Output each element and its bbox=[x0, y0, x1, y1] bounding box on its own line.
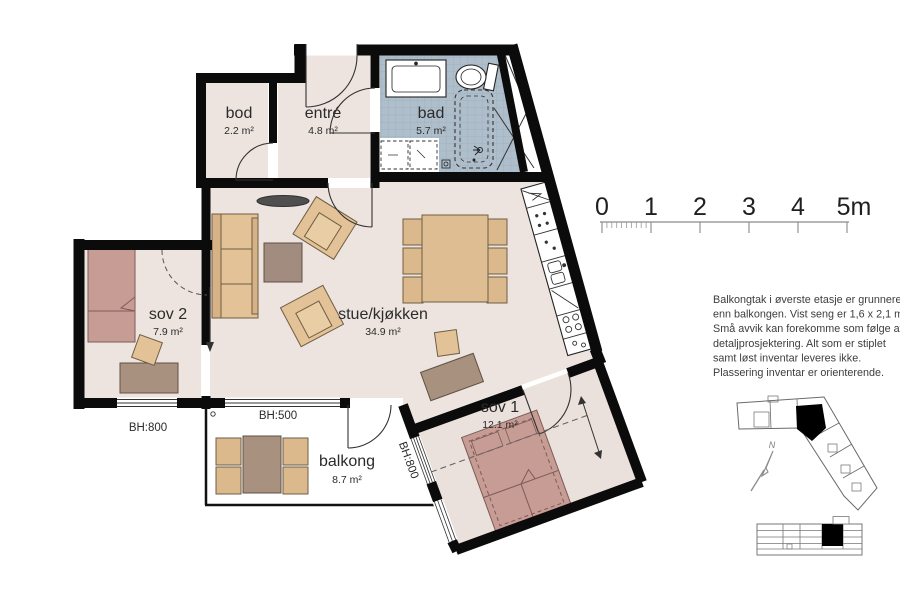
desk-chair-stue bbox=[434, 330, 459, 357]
balcony-table bbox=[243, 436, 281, 493]
balcony-chair bbox=[283, 467, 308, 494]
window-balkong-bh500 bbox=[225, 398, 340, 409]
room-label-sov1: sov 1 bbox=[481, 399, 519, 416]
scale-tick-0: 0 bbox=[595, 193, 609, 221]
scale-tick-5m: 5m bbox=[837, 193, 872, 221]
room-label-bod: bod bbox=[226, 105, 253, 122]
room-label-bad: bad bbox=[418, 105, 445, 122]
dining-chair bbox=[403, 219, 423, 245]
bathroom-sink bbox=[386, 60, 446, 97]
room-area-bad: 5.7 m² bbox=[416, 125, 446, 137]
room-label-sov2: sov 2 bbox=[149, 306, 187, 323]
location-unit-filled bbox=[796, 404, 826, 441]
toilet bbox=[456, 63, 498, 90]
entrance-threshold bbox=[306, 44, 357, 56]
scale-bar: 0 1 2 3 4 5m bbox=[595, 193, 871, 233]
note-line: Balkongtak i øverste etasje er grunnere bbox=[713, 294, 900, 306]
dining-chair bbox=[487, 277, 507, 303]
scale-tick-3: 3 bbox=[742, 193, 756, 221]
room-area-balkong: 8.7 m² bbox=[332, 474, 362, 486]
dining-chair bbox=[403, 277, 423, 303]
dining-chair bbox=[487, 219, 507, 245]
floor-plan-page: BH:800 bod 2.2 m² entré bbox=[0, 0, 900, 600]
bed-sov2 bbox=[88, 243, 135, 342]
floor-plan-drawing: BH:800 bod 2.2 m² entré bbox=[0, 0, 900, 600]
balcony-chair bbox=[216, 438, 241, 465]
dining-set bbox=[403, 215, 507, 303]
coffee-table bbox=[264, 243, 302, 282]
dining-table bbox=[422, 215, 488, 302]
room-label-balkong: balkong bbox=[319, 453, 375, 470]
balcony-chair bbox=[283, 438, 308, 465]
note-line: enn balkongen. Vist seng er 1,6 x 2,1 m. bbox=[713, 309, 900, 321]
balcony-chair bbox=[216, 467, 241, 494]
elevation-diagram bbox=[757, 517, 862, 556]
scale-tick-4: 4 bbox=[791, 193, 805, 221]
balcony-set bbox=[216, 436, 308, 494]
north-label: N bbox=[769, 440, 776, 450]
sill-label-sov2: BH:800 bbox=[129, 422, 167, 434]
window-sov2 bbox=[117, 398, 177, 409]
washer-dryer-niche bbox=[379, 138, 439, 172]
sill-label-balkong: BH:500 bbox=[259, 410, 297, 422]
notes-block: Balkongtak i øverste etasje er grunnere … bbox=[713, 294, 900, 379]
room-area-entre: 4.8 m² bbox=[308, 125, 338, 137]
location-map bbox=[737, 396, 877, 510]
desk-sov2 bbox=[120, 363, 178, 393]
elevation-unit-filled bbox=[822, 524, 843, 546]
room-label-stue: stue/kjøkken bbox=[338, 306, 428, 323]
note-line: detaljprosjektering. Alt som er stiplet bbox=[713, 338, 886, 350]
doormat bbox=[257, 196, 309, 207]
room-area-stue: 34.9 m² bbox=[365, 326, 401, 338]
room-area-sov1: 12.1 m² bbox=[482, 419, 518, 431]
dining-chair bbox=[487, 248, 507, 274]
north-arrow: N bbox=[751, 440, 776, 491]
scale-tick-2: 2 bbox=[693, 193, 707, 221]
note-line: Plassering inventar er orienterende. bbox=[713, 367, 884, 379]
note-line: samt løst inventar leveres ikke. bbox=[713, 352, 861, 364]
sofa bbox=[212, 214, 258, 318]
dining-chair bbox=[403, 248, 423, 274]
room-label-entre: entré bbox=[305, 105, 342, 122]
room-area-bod: 2.2 m² bbox=[224, 125, 254, 137]
room-area-sov2: 7.9 m² bbox=[153, 326, 183, 338]
scale-tick-1: 1 bbox=[644, 193, 658, 221]
note-line: Små avvik kan forekomme som følge av bbox=[713, 323, 900, 335]
